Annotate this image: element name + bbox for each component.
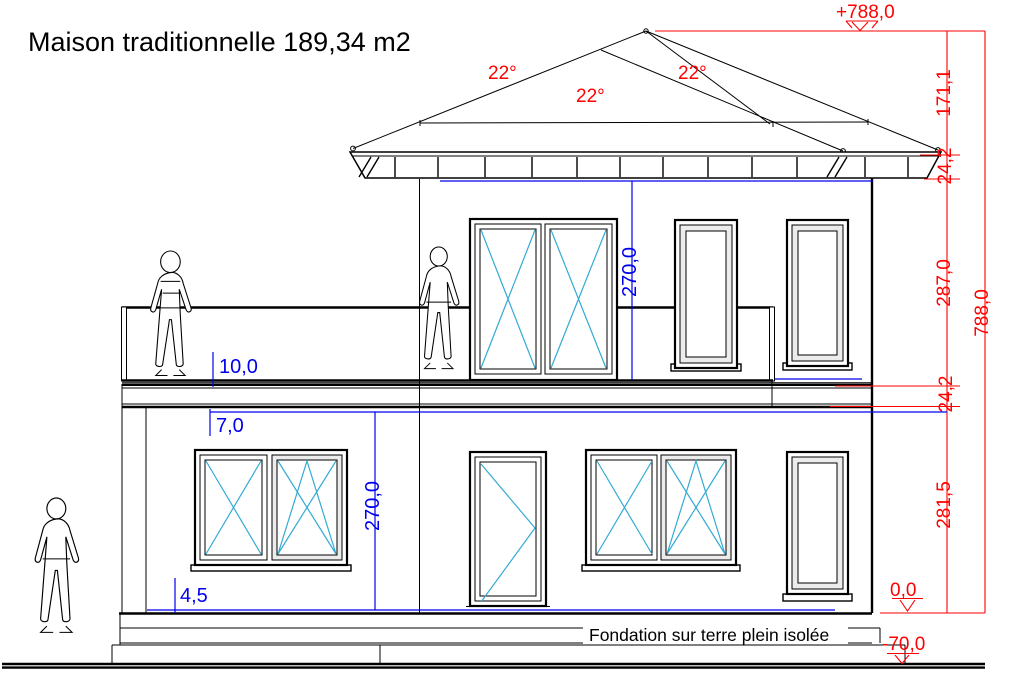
dim-railing-detail: 10,0 — [219, 356, 258, 378]
scale-figure-balcony-woman — [151, 251, 191, 375]
window-ground-narrow-right — [783, 452, 852, 601]
dim-plinth-detail: 4,5 — [180, 585, 208, 607]
roof — [351, 29, 941, 154]
dim-slab-detail: 7,0 — [216, 415, 244, 437]
dim-upper-clear-height: 270,0 — [619, 247, 641, 297]
dim-lower-clear-height: 270,0 — [362, 481, 384, 531]
level-label-foundation: -70,0 — [882, 634, 925, 655]
dim-eave-band: 24,2 — [935, 148, 956, 185]
window-upper-narrow-1 — [671, 220, 741, 371]
dim-floor-slab: 24,2 — [936, 376, 957, 413]
scale-figure-ground-man — [35, 498, 78, 632]
level-marker-foundation — [887, 654, 919, 664]
railing-left-post — [122, 307, 127, 381]
railing-right-post — [770, 307, 775, 381]
dim-lower-storey: 281,5 — [934, 481, 955, 529]
floor-slab-band — [122, 385, 872, 407]
roof-angle-left: 22° — [488, 63, 517, 84]
window-upper-french — [470, 219, 617, 380]
foundation — [2, 613, 985, 668]
house-elevation-svg: +788,0 0,0 -70,0 171,1 24,2 287,0 24,2 2… — [0, 0, 1016, 686]
door-ground-french — [466, 452, 550, 607]
dim-upper-storey: 287,0 — [934, 259, 955, 307]
foundation-note: Fondation sur terre plein isolée — [589, 625, 829, 645]
level-label-ground: 0,0 — [890, 580, 916, 601]
roof-angle-middle: 22° — [576, 86, 605, 107]
elevation-drawing: +788,0 0,0 -70,0 171,1 24,2 287,0 24,2 2… — [0, 0, 1016, 686]
eave-fascia — [350, 152, 941, 178]
roof-angle-right: 22° — [678, 63, 707, 84]
dim-total-height: 788,0 — [972, 289, 993, 337]
window-ground-left — [191, 450, 351, 571]
drawing-title: Maison traditionnelle 189,34 m2 — [28, 27, 411, 57]
level-label-top: +788,0 — [836, 2, 895, 23]
window-ground-center — [582, 450, 740, 571]
window-upper-narrow-2 — [783, 220, 852, 370]
dim-roof-height: 171,1 — [934, 69, 955, 117]
